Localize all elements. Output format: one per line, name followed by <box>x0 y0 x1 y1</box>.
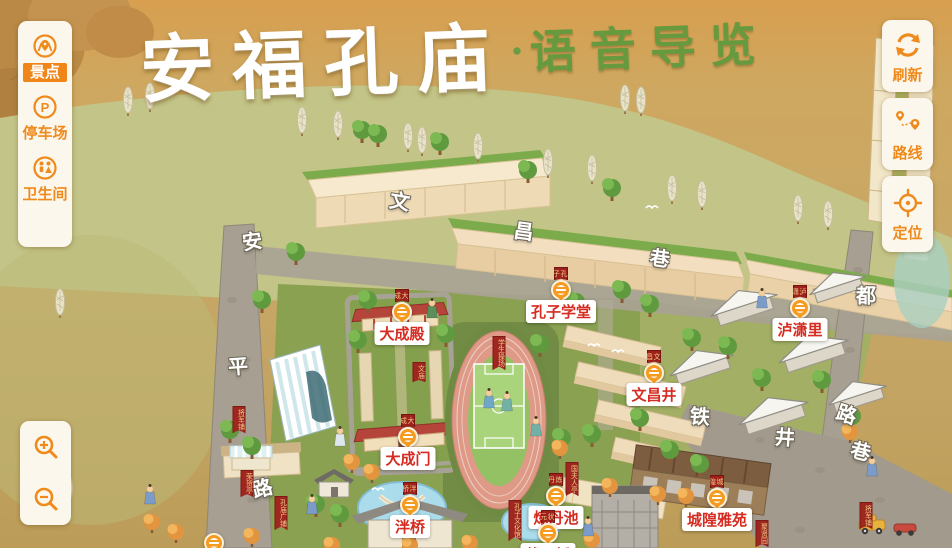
audio-guide-badge-icon[interactable] <box>551 280 571 300</box>
route-button[interactable]: 路线 <box>882 98 933 170</box>
poi-label[interactable]: 炼丹池 <box>528 506 583 529</box>
scenic-spot-icon <box>32 33 58 59</box>
sidebar-item-restroom[interactable]: 卫生间 <box>18 155 72 204</box>
audio-guide-badge-icon[interactable] <box>790 298 810 318</box>
svg-text:P: P <box>41 100 50 115</box>
locate-button[interactable]: 定位 <box>882 176 933 252</box>
sidebar-item-parking[interactable]: P 停车场 <box>18 94 72 143</box>
audio-guide-badge-icon[interactable] <box>400 495 420 515</box>
poi-label[interactable]: 城隍雅苑 <box>682 508 752 531</box>
poi-banner: 文昌井 <box>647 350 661 363</box>
poi-banner: 孔子学堂 <box>554 267 568 280</box>
zoom-in-icon <box>29 430 63 464</box>
refresh-label: 刷新 <box>892 64 922 85</box>
voice-guide-map-app: 安平路文昌巷铁井路巷都 将军铺荣贺亭孔庙广铺孔子文化馆文庙学生操场国夫人亭聚贤园… <box>0 0 952 548</box>
zoom-in-button[interactable] <box>29 430 63 464</box>
poi-label[interactable]: 文昌井 <box>626 383 681 406</box>
audio-guide-badge-icon[interactable] <box>398 427 418 447</box>
route-icon <box>891 106 925 140</box>
audio-guide-badge-icon[interactable] <box>204 533 224 548</box>
zoom-out-icon <box>29 482 63 516</box>
poi-banner: 泮桥 <box>403 482 417 495</box>
audio-guide-badge-icon[interactable] <box>538 523 558 543</box>
poi-label[interactable]: 泮桥 <box>390 515 430 538</box>
locate-icon <box>891 186 925 220</box>
route-label: 路线 <box>892 142 922 163</box>
poi-banner: 大成殿 <box>395 289 409 302</box>
map-canvas[interactable] <box>0 0 952 548</box>
parking-icon: P <box>32 94 58 120</box>
refresh-icon <box>891 28 925 62</box>
poi-banner: 状元桥 <box>541 510 555 523</box>
zoom-out-button[interactable] <box>29 482 63 516</box>
audio-guide-badge-icon[interactable] <box>644 363 664 383</box>
poi-label[interactable]: 大成殿 <box>374 322 429 345</box>
sidebar-item-label: 景点 <box>23 63 67 82</box>
audio-guide-badge-icon[interactable] <box>707 488 727 508</box>
audio-guide-badge-icon[interactable] <box>546 486 566 506</box>
poi-label[interactable]: 泸潇里 <box>772 318 827 341</box>
zoom-panel <box>20 421 71 525</box>
audio-guide-badge-icon[interactable] <box>392 302 412 322</box>
sidebar-item-scenic[interactable]: 景点 <box>18 33 72 82</box>
poi-banner: 泸潇里 <box>793 285 807 298</box>
refresh-button[interactable]: 刷新 <box>882 20 933 92</box>
poi-banner: 大成门 <box>401 414 415 427</box>
poi-banner: 炼丹池 <box>549 473 563 486</box>
sidebar: 景点 P 停车场 卫生间 <box>18 21 72 247</box>
poi-label[interactable]: 孔子学堂 <box>526 300 596 323</box>
sidebar-item-label: 停车场 <box>22 124 67 143</box>
sidebar-item-label: 卫生间 <box>22 185 67 204</box>
poi-label[interactable]: 状元桥 <box>520 543 575 548</box>
restroom-icon <box>32 155 58 181</box>
poi-banner: 城隍雅苑 <box>710 475 724 488</box>
locate-label: 定位 <box>892 222 922 243</box>
poi-label[interactable]: 大成门 <box>380 447 435 470</box>
